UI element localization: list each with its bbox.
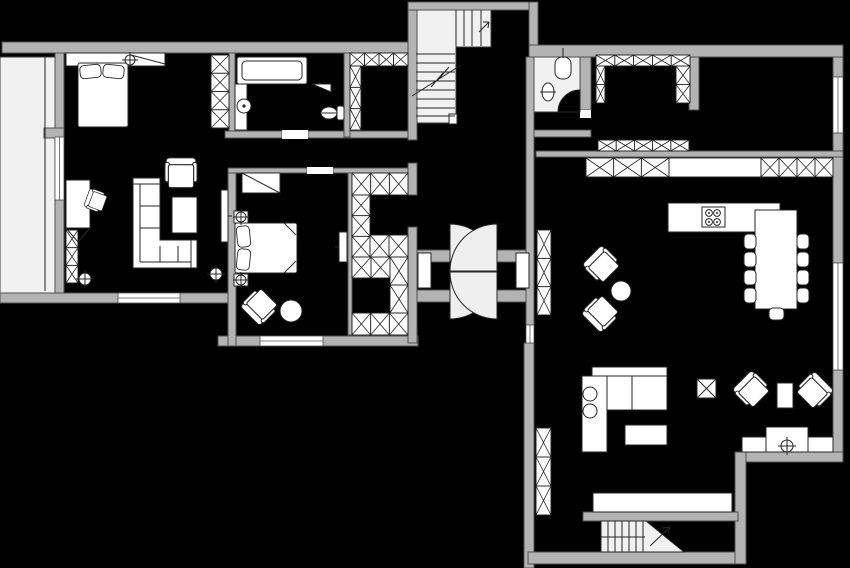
armchair-bedroom2 bbox=[239, 286, 279, 326]
closet-master-top bbox=[596, 55, 690, 66]
cabinet-hall-lower bbox=[536, 428, 551, 515]
door-gap bbox=[307, 167, 333, 174]
tv-bedroom2 bbox=[339, 232, 347, 262]
wall bbox=[533, 130, 591, 137]
wall bbox=[344, 53, 350, 137]
dining-chair bbox=[797, 270, 809, 285]
wardrobe-bedroom1 bbox=[211, 55, 229, 128]
dining-chair bbox=[744, 234, 756, 249]
sideboard bbox=[669, 158, 761, 177]
wardrobe-corridor-side bbox=[350, 66, 361, 130]
closet-master-bottom bbox=[598, 140, 689, 151]
wall bbox=[528, 552, 746, 564]
dot bbox=[708, 212, 710, 214]
tv-bench bbox=[593, 493, 732, 512]
sofa-cushion bbox=[583, 404, 597, 418]
dot bbox=[708, 221, 710, 223]
armchair-living bbox=[165, 158, 197, 188]
toilet-tank bbox=[337, 106, 344, 120]
wall bbox=[408, 163, 417, 195]
wall bbox=[689, 57, 699, 110]
dining-chair bbox=[744, 252, 756, 267]
wall bbox=[833, 57, 843, 77]
bathroom-door bbox=[312, 84, 331, 92]
side-table-fire bbox=[777, 383, 793, 408]
door-gap bbox=[580, 110, 591, 118]
wall bbox=[55, 53, 64, 137]
closet2-mid2 bbox=[352, 257, 390, 278]
cooktop bbox=[702, 207, 725, 227]
dot bbox=[716, 212, 718, 214]
sofa-cushion bbox=[583, 387, 597, 401]
dining-chair bbox=[744, 288, 756, 303]
armchair-fireplace-1 bbox=[731, 369, 771, 409]
coffee-table-1 bbox=[172, 197, 197, 233]
dining-chair bbox=[769, 308, 784, 320]
dining-chair bbox=[797, 252, 809, 267]
wall bbox=[735, 452, 843, 462]
lamp-symbol bbox=[76, 270, 94, 288]
wall bbox=[735, 452, 746, 564]
wardrobe-living bbox=[66, 230, 78, 283]
lamp-symbol bbox=[207, 265, 225, 283]
fireplace-bench-right bbox=[808, 437, 833, 452]
pillow bbox=[79, 64, 101, 79]
sofa-back-cushion bbox=[592, 367, 667, 376]
dining-table bbox=[755, 210, 797, 309]
wall bbox=[2, 42, 412, 53]
door-panel-left bbox=[418, 253, 431, 288]
dining-chair bbox=[797, 288, 809, 303]
cabinet-north-right bbox=[761, 158, 833, 177]
wall bbox=[55, 200, 64, 293]
wall bbox=[229, 53, 235, 138]
wall bbox=[417, 290, 450, 302]
armchair-living-seat bbox=[168, 165, 193, 188]
wall bbox=[497, 290, 530, 302]
wall bbox=[348, 173, 352, 335]
dining-chair bbox=[797, 234, 809, 249]
round-table-kitchen bbox=[611, 281, 631, 301]
wall bbox=[580, 57, 591, 110]
round-table-bedroom2 bbox=[280, 300, 302, 322]
dot bbox=[242, 104, 245, 107]
wall bbox=[408, 227, 417, 343]
pillow bbox=[102, 64, 124, 79]
wall bbox=[228, 168, 307, 173]
lounge-chair-1 bbox=[581, 244, 621, 284]
closet2-left bbox=[352, 195, 370, 257]
wall bbox=[225, 131, 282, 138]
wall bbox=[408, 2, 417, 140]
floor-plan-page bbox=[0, 0, 850, 568]
wall bbox=[408, 2, 538, 10]
floor-plan-canvas bbox=[0, 0, 850, 568]
coffee-table-2 bbox=[625, 425, 667, 445]
closet-master-right bbox=[676, 66, 690, 103]
door-panel-right bbox=[516, 253, 529, 288]
cabinet-hall-upper bbox=[537, 230, 551, 315]
closet-master-left bbox=[596, 66, 605, 103]
stair-flight-upper bbox=[416, 10, 456, 123]
closet2-top bbox=[352, 173, 408, 195]
lounge-chair-2 bbox=[580, 293, 620, 333]
wall bbox=[524, 343, 534, 568]
pillow bbox=[236, 225, 251, 247]
terrace bbox=[0, 57, 55, 293]
wc-toilet bbox=[555, 57, 571, 79]
closet2-right bbox=[390, 257, 408, 313]
wardrobe-corridor-top bbox=[350, 53, 408, 66]
closet2-mid bbox=[370, 235, 408, 257]
cabinet-north-left bbox=[586, 158, 669, 177]
wall bbox=[536, 151, 843, 157]
wall bbox=[44, 128, 64, 138]
closet2-bottom bbox=[352, 313, 408, 335]
door-gap bbox=[282, 130, 308, 139]
wall bbox=[333, 168, 413, 173]
pillow bbox=[236, 248, 251, 270]
wall bbox=[833, 370, 843, 462]
tv-living bbox=[221, 190, 228, 242]
dining-chair bbox=[744, 270, 756, 285]
armchair-fireplace-2 bbox=[794, 370, 834, 410]
dot bbox=[716, 221, 718, 223]
fireplace-bench-left bbox=[742, 437, 767, 452]
wall bbox=[583, 512, 738, 521]
wall bbox=[308, 131, 408, 138]
